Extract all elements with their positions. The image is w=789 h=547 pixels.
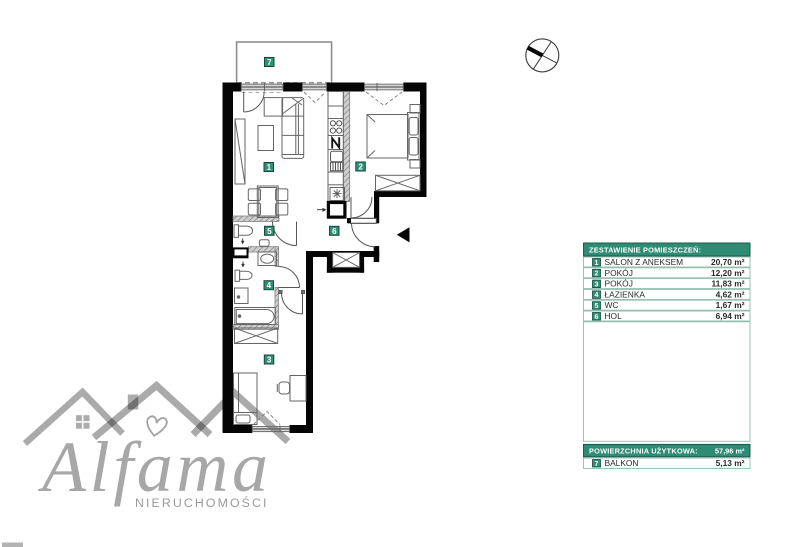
svg-text:4,62 m²: 4,62 m² [716, 289, 745, 299]
svg-text:11,83 m²: 11,83 m² [711, 279, 744, 289]
svg-text:7: 7 [595, 461, 599, 468]
svg-text:5: 5 [267, 227, 272, 236]
svg-text:POKÓJ: POKÓJ [605, 268, 633, 278]
svg-text:4: 4 [595, 292, 599, 299]
svg-text:12,20 m²: 12,20 m² [711, 268, 745, 278]
svg-text:1,67 m²: 1,67 m² [716, 300, 745, 310]
svg-text:6: 6 [332, 227, 337, 236]
svg-text:20,70 m²: 20,70 m² [711, 257, 745, 267]
svg-text:3: 3 [595, 281, 599, 288]
svg-text:1: 1 [267, 163, 272, 172]
svg-text:7: 7 [267, 58, 272, 67]
svg-text:2: 2 [358, 163, 363, 172]
svg-text:WC: WC [605, 300, 619, 310]
svg-text:4: 4 [267, 281, 272, 290]
svg-text:ŁAZIENKA: ŁAZIENKA [605, 289, 646, 299]
svg-text:NIERUCHOMOŚCI: NIERUCHOMOŚCI [135, 495, 269, 510]
svg-text:3: 3 [267, 356, 272, 365]
svg-text:Alfama: Alfama [38, 427, 268, 507]
svg-text:1: 1 [595, 260, 599, 267]
svg-text:5,13 m²: 5,13 m² [716, 458, 745, 468]
svg-text:ZESTAWIENIE POMIESZCZEŃ:: ZESTAWIENIE POMIESZCZEŃ: [589, 246, 701, 255]
svg-text:57,96 m²: 57,96 m² [715, 447, 745, 456]
svg-text:HOL: HOL [605, 311, 623, 321]
svg-text:6,94 m²: 6,94 m² [716, 311, 745, 321]
svg-text:POWIERZCHNIA UŻYTKOWA:: POWIERZCHNIA UŻYTKOWA: [589, 447, 698, 456]
svg-text:SALON Z ANEKSEM: SALON Z ANEKSEM [605, 257, 684, 267]
svg-text:5: 5 [595, 303, 599, 310]
svg-text:2: 2 [595, 271, 599, 278]
svg-text:BALKON: BALKON [605, 458, 639, 468]
svg-text:6: 6 [595, 314, 599, 321]
svg-text:POKÓJ: POKÓJ [605, 279, 633, 289]
